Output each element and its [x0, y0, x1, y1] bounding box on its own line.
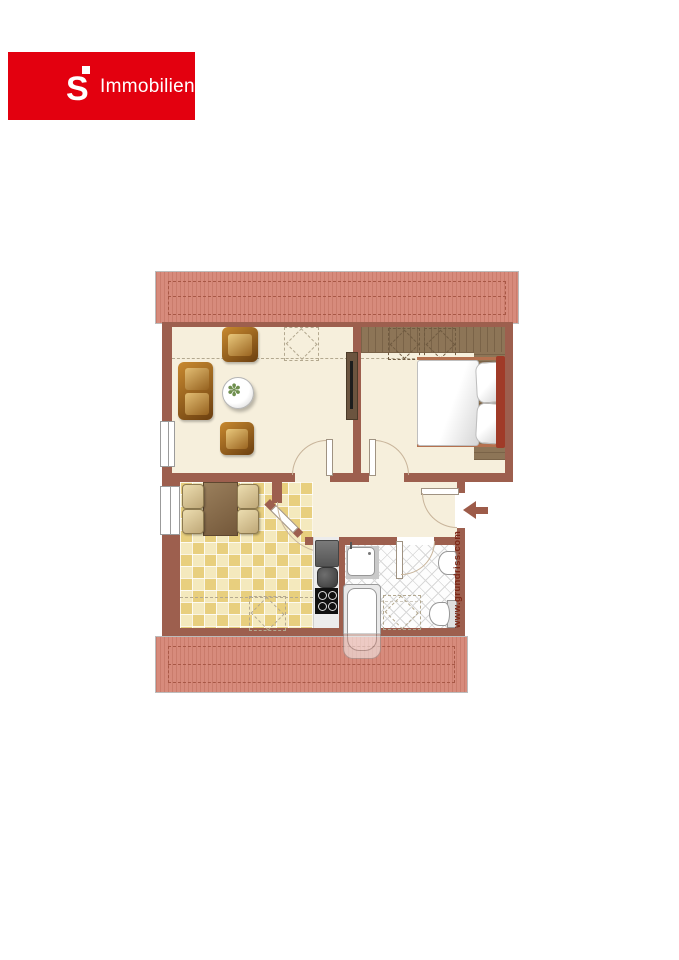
- roof-dashed-ridge: [168, 296, 506, 297]
- dining-chair-2: [182, 509, 204, 534]
- sparkasse-s-icon: S: [60, 64, 100, 108]
- dormer-window-living: [284, 327, 319, 361]
- roof-dashed-ridge: [168, 664, 455, 665]
- roof-band-top: [155, 271, 519, 324]
- kitchen-hall-wall: [272, 482, 282, 503]
- sink-pot: [317, 567, 338, 588]
- bed-duvet: [417, 360, 479, 446]
- cooktop: [315, 588, 338, 614]
- sparkasse-logo-banner: S Immobilien: [8, 52, 195, 120]
- kitchen-unit-counter: [313, 537, 339, 628]
- roof-band-bottom: [155, 636, 468, 693]
- bathtub-upper: [343, 584, 381, 634]
- burner: [328, 602, 337, 611]
- burner: [318, 602, 327, 611]
- bedroom-door-leaf: [369, 439, 376, 476]
- knee-wall-line-kitchen: [180, 597, 313, 598]
- page: { "branding": { "logo_symbol": "S", "log…: [0, 0, 679, 960]
- watermark-grundriss: www.grundriss.com: [452, 537, 465, 628]
- dining-chair-1: [182, 484, 204, 509]
- bathtub-lower-under-roof: [343, 632, 381, 659]
- coffee-table: ✽: [222, 377, 254, 409]
- dining-chair-3: [237, 484, 259, 509]
- armchair-top: [222, 327, 258, 362]
- dining-table: [203, 482, 238, 536]
- dormer-window-bedroom-1: [388, 328, 420, 360]
- shower-tap: [350, 542, 352, 549]
- knee-wall-line-living: [172, 358, 353, 359]
- kitchen-window: [160, 486, 180, 535]
- armchair-bottom: [220, 422, 254, 455]
- living-window: [160, 421, 175, 467]
- shower-tray: [347, 547, 375, 576]
- logo-wordmark: Immobilien: [100, 76, 195, 98]
- toilet-bowl: [429, 602, 450, 626]
- s-letter: S: [66, 72, 89, 106]
- bathtub-inner: [347, 588, 377, 633]
- dining-chair-4: [237, 509, 259, 534]
- shower: [346, 546, 379, 579]
- burner: [318, 591, 327, 600]
- dormer-window-bedroom-2: [424, 328, 456, 360]
- plant-icon: ✽: [227, 381, 241, 401]
- sofa: [178, 362, 213, 420]
- fridge: [315, 540, 339, 567]
- bathtub-inner-ghost: [347, 632, 377, 651]
- dormer-window-kitchen: [249, 596, 286, 631]
- burner: [328, 591, 337, 600]
- shower-drain: [368, 552, 371, 555]
- dormer-window-bath: [383, 595, 421, 630]
- heater-slot: [350, 361, 353, 409]
- bed-headboard: [496, 356, 505, 448]
- living-door-leaf: [326, 439, 333, 476]
- heater: [346, 352, 358, 420]
- s-dot: [82, 66, 90, 74]
- entrance-arrow-shaft: [475, 507, 488, 514]
- roof-dashed-outline: [168, 281, 506, 315]
